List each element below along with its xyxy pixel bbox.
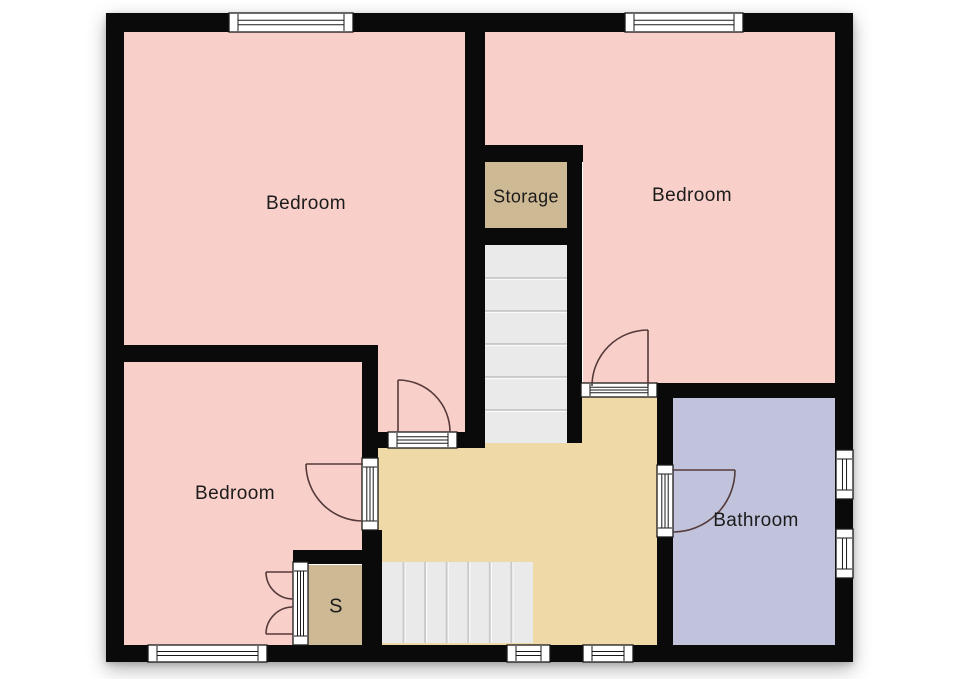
room-bathroom xyxy=(673,398,835,645)
window-bathroom-1 xyxy=(836,450,853,499)
wall-bathroom-top xyxy=(657,383,835,398)
wall-left xyxy=(106,13,124,662)
window-hall-bottom-2 xyxy=(583,645,633,662)
window-bedroom3-bottom xyxy=(148,645,267,662)
wall-hall-left-lower xyxy=(362,530,382,662)
wall-storage-top xyxy=(465,145,583,162)
wall-bathroom-left-up xyxy=(657,383,673,465)
wall-storage-bottom xyxy=(465,228,582,245)
window-hall-bottom-1 xyxy=(507,645,550,662)
wall-bedrooms-divider xyxy=(106,345,377,362)
wall-bathroom-left-lo xyxy=(657,537,673,662)
room-storage xyxy=(485,162,567,228)
window-bedroom2-top xyxy=(625,13,743,32)
floor-plan-page: BedroomBedroomBedroomStorageSBathroom xyxy=(0,0,960,679)
window-bathroom-2 xyxy=(836,529,853,578)
room-closet-s xyxy=(308,565,365,645)
wall-stairwell-right xyxy=(567,145,582,443)
window-bedroom1-top xyxy=(229,13,353,32)
floor-plan-drawing xyxy=(0,0,960,679)
